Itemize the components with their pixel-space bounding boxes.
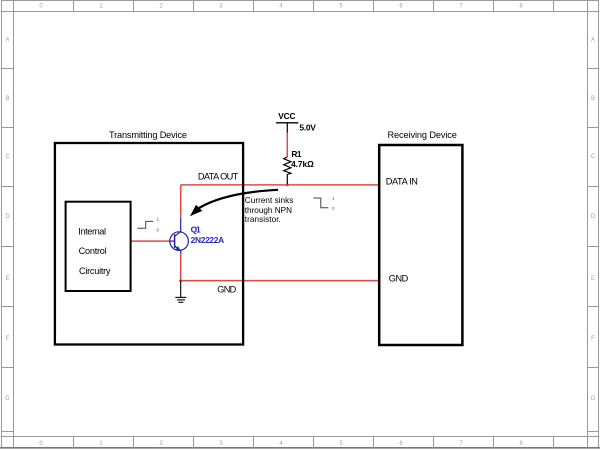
svg-text:C: C — [591, 154, 596, 160]
svg-text:F: F — [6, 336, 10, 342]
svg-text:D: D — [591, 214, 596, 220]
svg-text:Receiving Device: Receiving Device — [388, 130, 457, 140]
svg-text:E: E — [591, 276, 595, 282]
svg-text:1: 1 — [332, 196, 335, 201]
svg-text:G: G — [591, 396, 596, 402]
svg-text:DATA OUT: DATA OUT — [198, 172, 239, 182]
svg-text:R1: R1 — [291, 149, 302, 159]
svg-text:D: D — [5, 214, 10, 220]
svg-text:A: A — [591, 37, 595, 43]
svg-text:B: B — [591, 96, 595, 102]
svg-text:F: F — [591, 336, 595, 342]
svg-text:VCC: VCC — [278, 111, 295, 121]
svg-text:Control: Control — [79, 246, 107, 256]
svg-text:4.7kΩ: 4.7kΩ — [291, 159, 314, 169]
svg-text:Internal: Internal — [78, 227, 106, 237]
svg-text:DATA IN: DATA IN — [386, 177, 418, 187]
svg-text:GND: GND — [217, 284, 236, 294]
svg-text:Q1: Q1 — [191, 224, 201, 234]
svg-text:E: E — [5, 276, 9, 282]
svg-text:0: 0 — [157, 228, 160, 233]
svg-text:2N2222A: 2N2222A — [191, 235, 225, 245]
svg-text:G: G — [5, 396, 10, 402]
svg-text:A: A — [5, 37, 9, 43]
svg-text:transistor.: transistor. — [245, 215, 281, 224]
svg-text:C: C — [5, 154, 10, 160]
svg-text:Current sinks: Current sinks — [245, 196, 293, 205]
svg-text:through NPN: through NPN — [245, 206, 292, 215]
svg-text:Circuitry: Circuitry — [79, 266, 111, 276]
svg-text:5.0V: 5.0V — [299, 122, 316, 132]
svg-text:Transmitting Device: Transmitting Device — [109, 130, 187, 140]
svg-text:GND: GND — [389, 273, 409, 283]
svg-text:1: 1 — [157, 216, 160, 221]
svg-text:B: B — [5, 96, 9, 102]
svg-text:0: 0 — [332, 206, 335, 211]
